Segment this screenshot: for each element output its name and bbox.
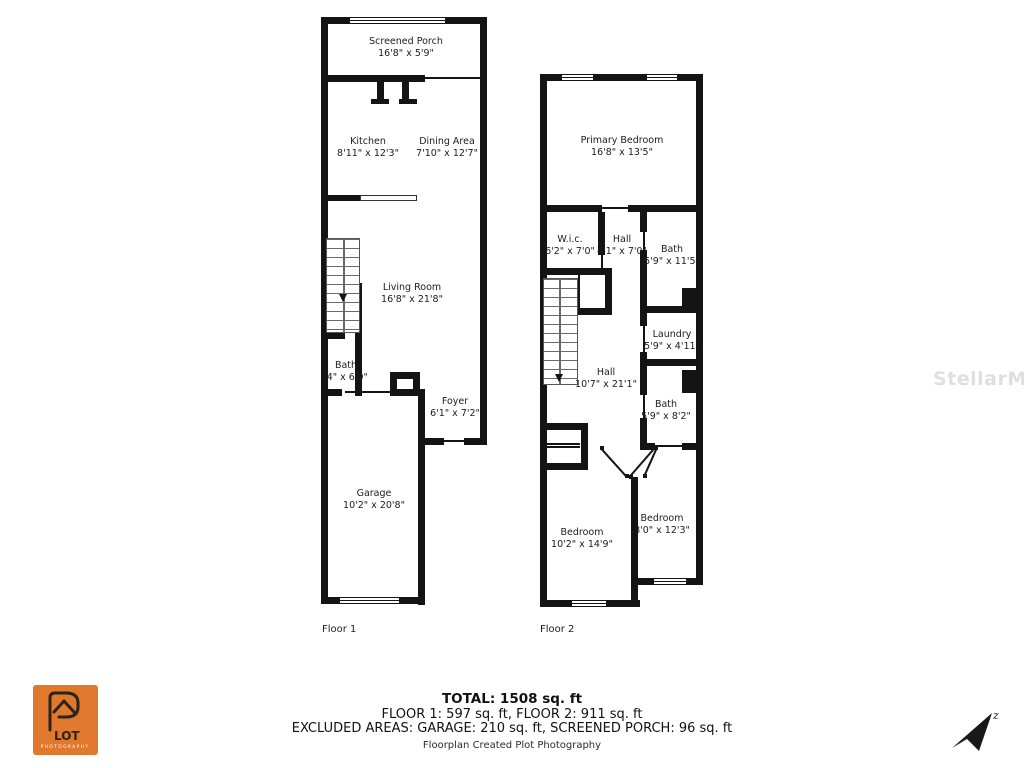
room-label-screened-porch: Screened Porch 16'8" x 5'9" (346, 36, 466, 60)
room-label-living: Living Room 16'8" x 21'8" (352, 282, 472, 306)
floor2-caption: Floor 2 (540, 624, 574, 635)
wall (540, 205, 602, 212)
stair-edge-line (578, 275, 580, 308)
room-label-bath1: Bath '4" x 6'9" (316, 360, 376, 384)
room-label-primary-bedroom: Primary Bedroom 16'8" x 13'5" (562, 135, 682, 159)
chase (682, 370, 696, 393)
north-arrow-label: z (992, 709, 999, 722)
room-label-hall: Hall 10'7" x 21'1" (566, 367, 646, 391)
wall (321, 195, 360, 201)
door-hinge (643, 474, 647, 478)
stair-direction-arrow (339, 294, 347, 302)
wall (682, 443, 703, 450)
wall (400, 597, 425, 604)
wall (464, 438, 487, 445)
porch-window (349, 17, 446, 24)
garage-door (339, 597, 400, 604)
room-label-foyer: Foyer 6'1" x 7'2" (415, 396, 495, 420)
door-leaf (601, 448, 628, 477)
closet-wall (540, 463, 588, 470)
wall (640, 359, 703, 366)
wall (640, 212, 647, 232)
door-leaf (630, 447, 656, 477)
logo-brand-text: LOT (54, 729, 80, 743)
wall (540, 268, 612, 275)
stair-direction-arrow (555, 374, 563, 382)
credit-text: Floorplan Created Plot Photography (0, 740, 1024, 751)
wall (321, 597, 339, 604)
entry-door-line (444, 440, 464, 442)
opening-line (425, 77, 480, 79)
door-line (655, 445, 682, 447)
wall (399, 99, 417, 104)
door-hinge (654, 446, 658, 450)
bifold-door-line (546, 443, 580, 445)
north-arrow-shape (952, 713, 992, 751)
bedroom-window (561, 74, 594, 81)
bedroom-window (571, 600, 607, 607)
logo-sub-text: PHOTOGRAPHY (41, 744, 90, 750)
bifold-door-line (546, 446, 580, 448)
door-line (602, 207, 628, 209)
door-hinge (600, 446, 604, 450)
bedroom-window (653, 578, 687, 585)
chase (682, 288, 696, 313)
floor1-caption: Floor 1 (322, 624, 356, 635)
bedroom-window (646, 74, 678, 81)
room-label-bath-upper: Bath 5'9" x 11'5" (632, 244, 712, 268)
room-label-laundry: Laundry 5'9" x 4'11" (632, 329, 712, 353)
room-label-bath-lower: Bath 5'9" x 8'2" (626, 399, 706, 423)
room-label-dining: Dining Area 7'10" x 12'7" (397, 136, 497, 160)
wall (321, 75, 425, 82)
wall (321, 389, 342, 396)
stair-divider (559, 278, 561, 385)
stair-divider (343, 238, 345, 333)
excluded-areas-text: EXCLUDED AREAS: GARAGE: 210 sq. ft, SCRE… (0, 721, 1024, 736)
wall (321, 332, 345, 339)
floor-areas-text: FLOOR 1: 597 sq. ft, FLOOR 2: 911 sq. ft (0, 707, 1024, 722)
wall (371, 99, 389, 104)
door-line (345, 391, 390, 393)
plot-photography-logo: LOT PHOTOGRAPHY (33, 685, 98, 755)
room-label-garage: Garage 10'2" x 20'8" (324, 488, 424, 512)
mls-watermark: StellarMLS (933, 368, 1024, 390)
wall (628, 205, 703, 212)
total-area-text: TOTAL: 1508 sq. ft (0, 691, 1024, 707)
wall (578, 308, 612, 315)
wall (480, 17, 487, 445)
north-arrow: z (945, 705, 1005, 760)
room-label-bedroom-right: Bedroom 8'0" x 12'3" (612, 513, 712, 537)
wall (631, 477, 638, 607)
wall (390, 389, 425, 396)
door-hinge (629, 475, 633, 479)
kitchen-counter (360, 195, 417, 201)
